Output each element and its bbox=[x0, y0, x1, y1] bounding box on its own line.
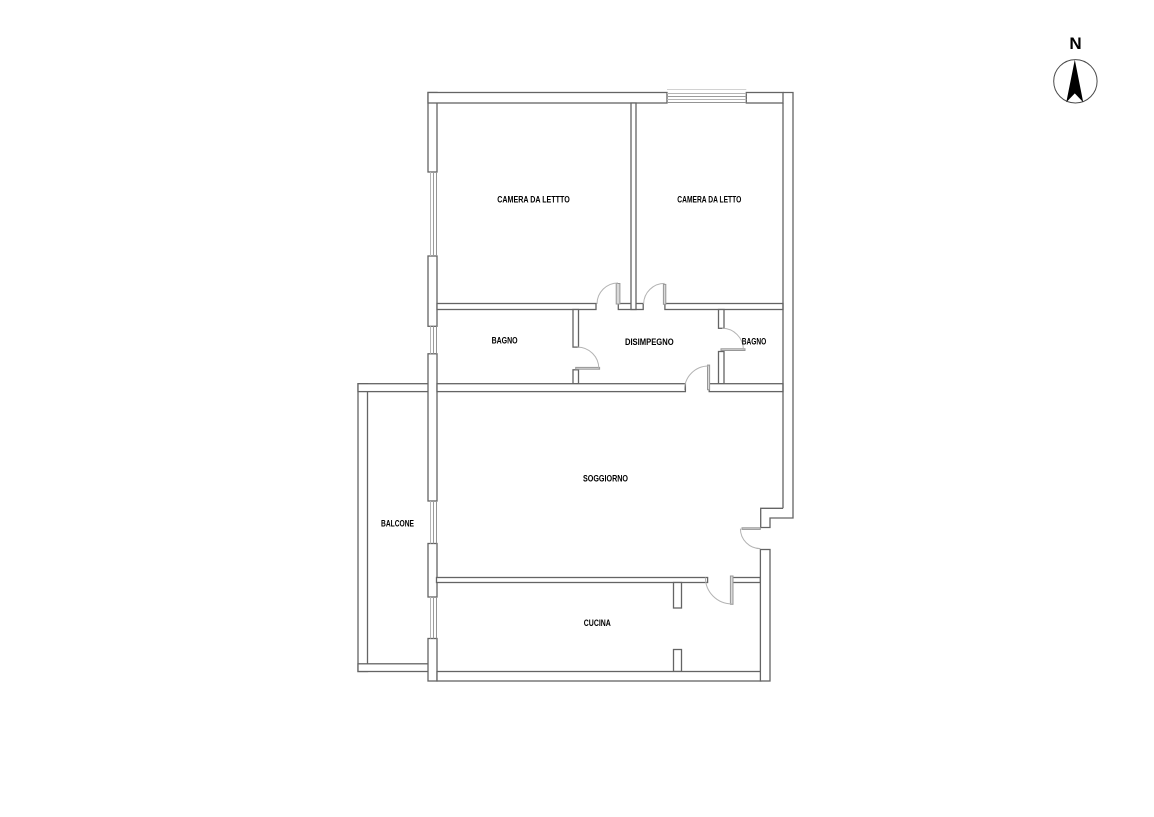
svg-text:BAGNO: BAGNO bbox=[742, 337, 767, 347]
svg-text:BALCONE: BALCONE bbox=[381, 519, 414, 529]
svg-text:DISIMPEGNO: DISIMPEGNO bbox=[625, 337, 674, 347]
svg-text:CAMERA DA LETTTO: CAMERA DA LETTTO bbox=[497, 195, 570, 205]
svg-text:N: N bbox=[1069, 34, 1081, 53]
svg-text:CUCINA: CUCINA bbox=[584, 618, 611, 628]
svg-text:CAMERA DA LETTO: CAMERA DA LETTO bbox=[677, 195, 741, 205]
svg-text:SOGGIORNO: SOGGIORNO bbox=[583, 474, 628, 484]
svg-text:BAGNO: BAGNO bbox=[492, 336, 518, 346]
